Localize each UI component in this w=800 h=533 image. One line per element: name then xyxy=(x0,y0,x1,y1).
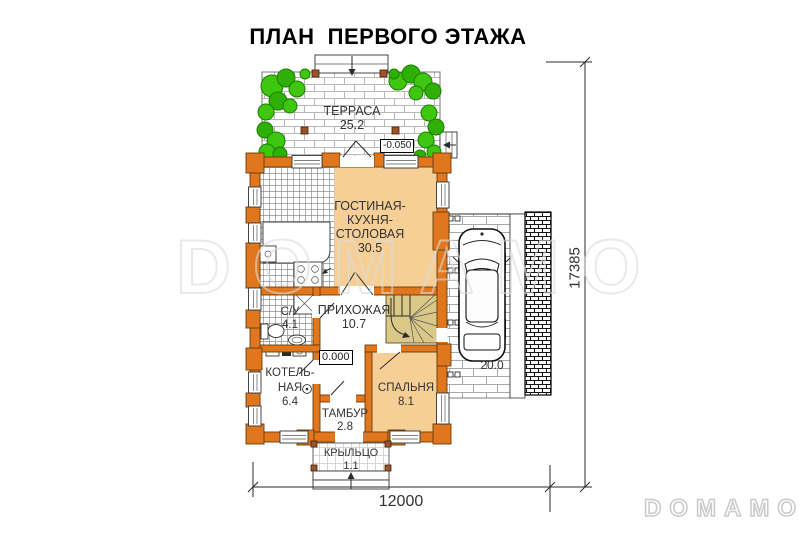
room-area: 6.4 xyxy=(265,395,314,410)
room-area: 1.1 xyxy=(324,460,378,473)
brand-logo: DOMAMO xyxy=(644,495,800,523)
hedge xyxy=(525,212,551,395)
room-label-boiler: КОТЕЛЬ- НАЯ 6.4 xyxy=(265,366,314,410)
room-label-living: ГОСТИНАЯ- КУХНЯ- СТОЛОВАЯ 30.5 xyxy=(334,199,406,255)
room-label-hallway: ПРИХОЖАЯ 10.7 xyxy=(318,303,391,331)
dimension-width: 12000 xyxy=(379,493,424,511)
page-title: ПЛАН ПЕРВОГО ЭТАЖА xyxy=(249,24,526,50)
room-area: 25.2 xyxy=(324,118,381,132)
floor-plan-page: ПЛАН ПЕРВОГО ЭТАЖА xyxy=(0,0,800,533)
carport-area-label: 20.0 xyxy=(480,359,503,372)
terrace-steps-top xyxy=(315,55,388,76)
sink-icon xyxy=(289,335,306,345)
room-area: 10.7 xyxy=(318,317,391,331)
carport-door-opening xyxy=(437,328,448,342)
room-area: 8.1 xyxy=(378,395,434,409)
walkway-strip xyxy=(510,214,525,398)
room-area: 2.8 xyxy=(322,421,368,434)
floor-plan-drawing xyxy=(0,0,800,533)
room-label-vestibule: ТАМБУР 2.8 xyxy=(322,408,368,434)
car-top-view xyxy=(453,229,511,361)
porch-steps xyxy=(313,471,389,489)
room-label-porch: КРЫЛЬЦО 1.1 xyxy=(324,447,378,472)
room-label-bedroom: СПАЛЬНЯ 8.1 xyxy=(378,381,434,409)
dimension-height: 17385 xyxy=(567,247,584,289)
room-label-terrace: ТЕРРАСА 25.2 xyxy=(324,104,381,132)
stove-icon xyxy=(294,262,322,287)
staircase xyxy=(386,293,437,343)
elevation-mark-terrace: -0.050 xyxy=(380,139,414,153)
elevation-mark-floor: 0.000 xyxy=(319,350,353,365)
room-area: 30.5 xyxy=(334,241,406,255)
room-label-bathroom: С/У 4.1 xyxy=(281,306,300,332)
room-area: 4.1 xyxy=(281,319,300,332)
